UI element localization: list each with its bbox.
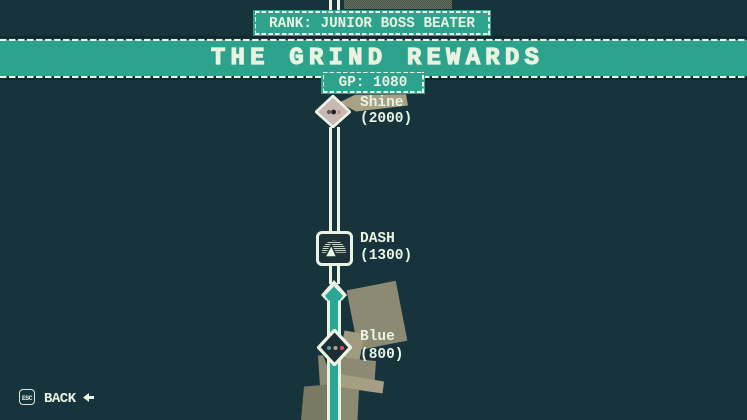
svg-text:ESC: ESC — [21, 395, 32, 402]
